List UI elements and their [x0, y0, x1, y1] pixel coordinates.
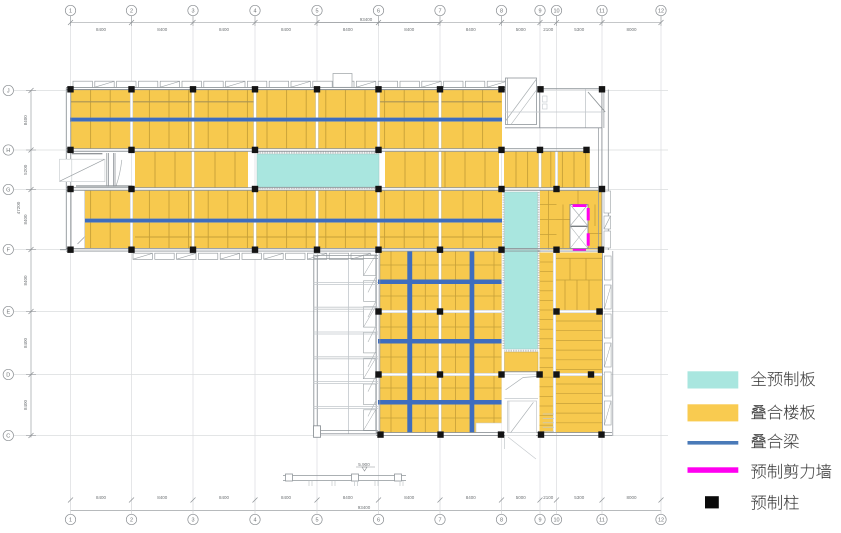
svg-text:8400: 8400: [343, 27, 354, 32]
svg-text:93400: 93400: [360, 17, 373, 22]
svg-text:8400: 8400: [466, 495, 477, 500]
svg-text:8400: 8400: [23, 275, 28, 286]
svg-text:5.900: 5.900: [358, 462, 370, 467]
svg-text:8400: 8400: [23, 337, 28, 348]
svg-text:2: 2: [130, 518, 133, 524]
svg-text:5000: 5000: [516, 27, 527, 32]
svg-text:4: 4: [253, 9, 256, 15]
svg-text:8400: 8400: [466, 27, 477, 32]
svg-text:8400: 8400: [157, 495, 168, 500]
svg-text:8: 8: [500, 9, 503, 15]
svg-text:5: 5: [315, 518, 318, 524]
svg-text:7: 7: [438, 9, 441, 15]
svg-text:8400: 8400: [23, 115, 28, 126]
svg-text:C: C: [6, 434, 10, 440]
svg-text:2100: 2100: [543, 27, 554, 32]
svg-text:8400: 8400: [23, 214, 28, 225]
svg-text:93400: 93400: [358, 505, 371, 510]
svg-text:9: 9: [538, 518, 541, 524]
svg-text:12: 12: [658, 9, 664, 15]
svg-text:8400: 8400: [219, 495, 230, 500]
svg-text:8400: 8400: [404, 27, 415, 32]
svg-text:10: 10: [553, 9, 559, 15]
svg-text:8400: 8400: [23, 399, 28, 410]
svg-text:11: 11: [599, 518, 605, 524]
svg-text:2: 2: [130, 9, 133, 15]
svg-text:3: 3: [191, 518, 194, 524]
svg-text:7: 7: [438, 518, 441, 524]
svg-text:8400: 8400: [96, 495, 107, 500]
svg-text:11: 11: [599, 9, 605, 15]
svg-text:6: 6: [377, 9, 380, 15]
svg-text:5300: 5300: [574, 495, 585, 500]
svg-text:8000: 8000: [626, 495, 637, 500]
svg-text:9: 9: [538, 9, 541, 15]
svg-text:4: 4: [253, 518, 256, 524]
svg-text:8400: 8400: [281, 27, 292, 32]
svg-text:3: 3: [191, 9, 194, 15]
svg-text:E: E: [6, 310, 10, 316]
svg-text:6: 6: [377, 518, 380, 524]
svg-text:5200: 5200: [23, 164, 28, 175]
svg-text:1: 1: [69, 518, 72, 524]
svg-text:8: 8: [500, 518, 503, 524]
svg-text:5: 5: [315, 9, 318, 15]
svg-text:5300: 5300: [574, 27, 585, 32]
svg-text:8400: 8400: [219, 27, 230, 32]
svg-text:47200: 47200: [16, 201, 21, 214]
svg-text:H: H: [6, 148, 10, 154]
svg-text:1: 1: [69, 9, 72, 15]
svg-text:5000: 5000: [516, 495, 527, 500]
svg-text:D: D: [6, 373, 10, 379]
svg-text:2100: 2100: [543, 495, 554, 500]
svg-text:8400: 8400: [157, 27, 168, 32]
svg-text:8400: 8400: [404, 495, 415, 500]
svg-text:8000: 8000: [626, 27, 637, 32]
svg-text:J: J: [7, 89, 10, 95]
svg-text:G: G: [6, 188, 10, 194]
svg-text:8400: 8400: [343, 495, 354, 500]
svg-text:8400: 8400: [281, 495, 292, 500]
svg-text:8400: 8400: [96, 27, 107, 32]
svg-text:10: 10: [553, 518, 559, 524]
svg-text:12: 12: [658, 518, 664, 524]
